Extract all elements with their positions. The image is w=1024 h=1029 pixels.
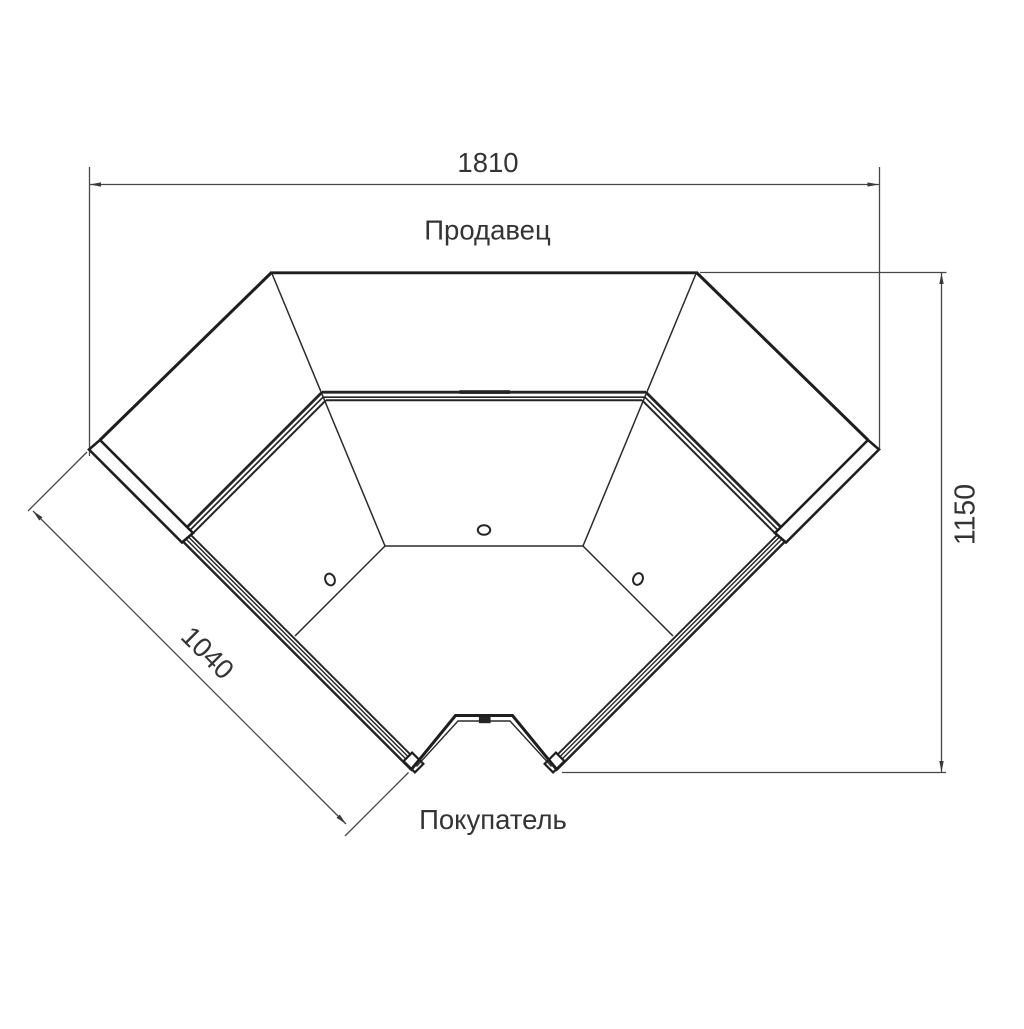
- svg-text:Продавец: Продавец: [424, 215, 551, 246]
- svg-text:1810: 1810: [457, 147, 518, 178]
- svg-text:1150: 1150: [950, 484, 982, 545]
- svg-text:Покупатель: Покупатель: [419, 804, 567, 835]
